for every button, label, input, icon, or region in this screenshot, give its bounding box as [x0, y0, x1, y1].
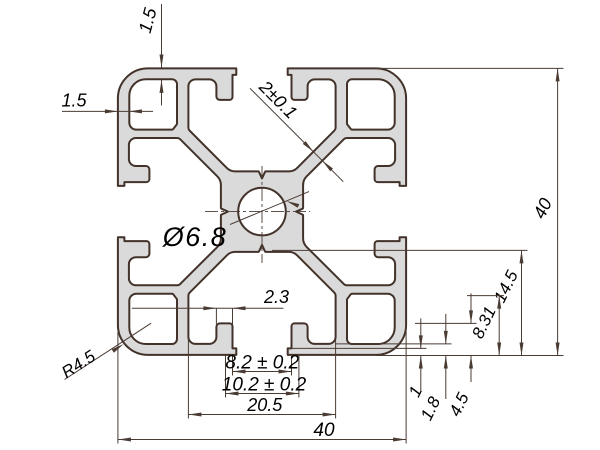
svg-text:20.5: 20.5 — [246, 395, 283, 415]
svg-text:1.5: 1.5 — [61, 91, 87, 111]
svg-text:2.3: 2.3 — [263, 287, 289, 307]
svg-text:40: 40 — [313, 420, 335, 441]
svg-text:10.2 ± 0.2: 10.2 ± 0.2 — [222, 375, 307, 396]
svg-text:8.2 ± 0.2: 8.2 ± 0.2 — [225, 352, 299, 373]
svg-text:Ø6.8: Ø6.8 — [162, 222, 228, 252]
